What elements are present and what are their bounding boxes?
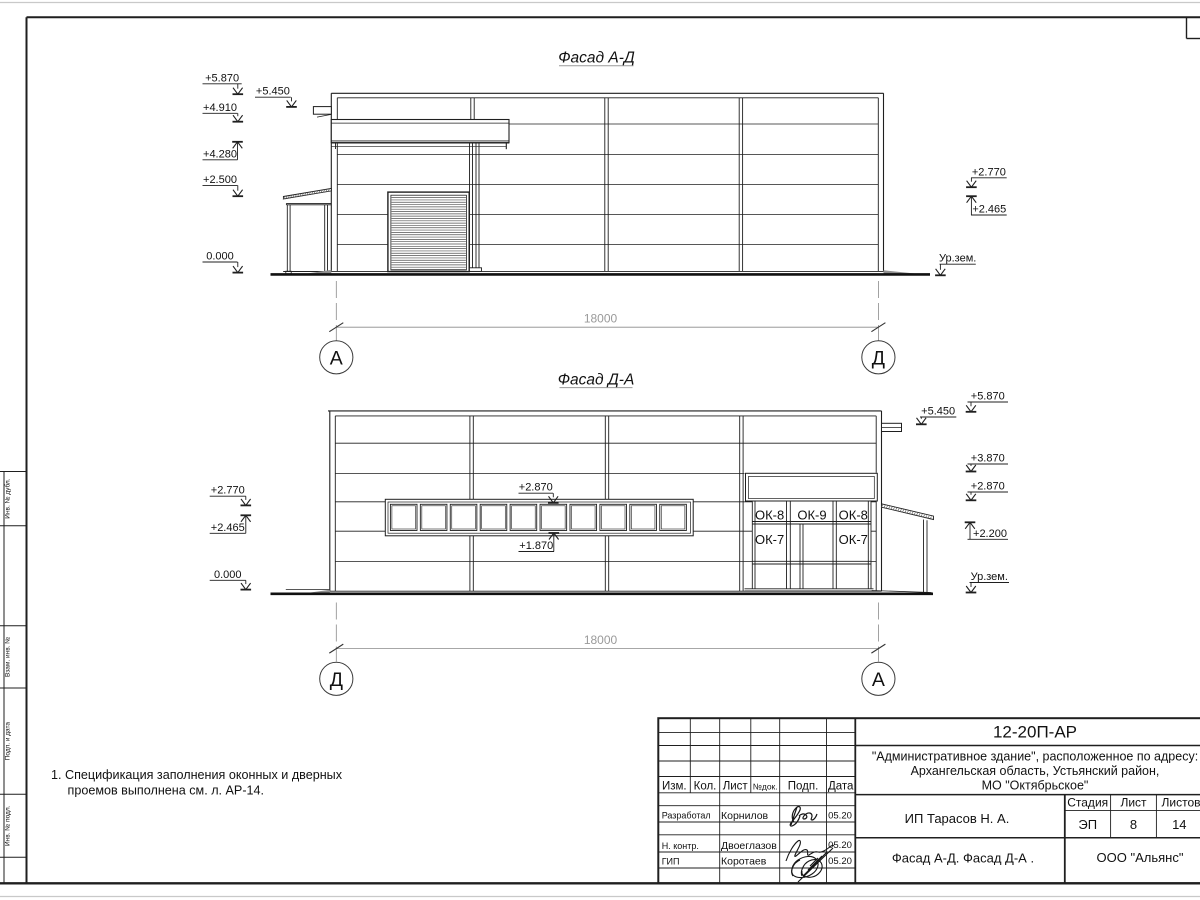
svg-text:Инв. № подл.: Инв. № подл.	[5, 805, 12, 846]
svg-text:+2.500: +2.500	[203, 174, 237, 186]
svg-text:Д: Д	[330, 669, 343, 691]
svg-text:Лист: Лист	[723, 780, 749, 792]
svg-text:0.000: 0.000	[206, 251, 234, 263]
svg-text:Фасад Д-А: Фасад Д-А	[558, 371, 635, 388]
svg-text:Дата: Дата	[828, 780, 854, 792]
svg-text:14: 14	[1172, 817, 1186, 832]
svg-text:+5.870: +5.870	[971, 391, 1005, 403]
svg-text:проемов выполнена см. л. АР-14: проемов выполнена см. л. АР-14.	[68, 784, 265, 798]
svg-text:Д: Д	[872, 347, 885, 369]
svg-text:8: 8	[1130, 817, 1137, 832]
svg-text:+4.280: +4.280	[203, 148, 237, 160]
svg-text:18000: 18000	[584, 633, 618, 647]
svg-text:+5.450: +5.450	[921, 406, 955, 418]
svg-text:"Административное здание", рас: "Административное здание", расположенное…	[872, 750, 1198, 764]
svg-text:Коротаев: Коротаев	[721, 856, 767, 868]
svg-text:Подп. и дата: Подп. и дата	[5, 722, 12, 761]
svg-text:05.20: 05.20	[828, 810, 852, 821]
svg-text:Инв. № дубл.: Инв. № дубл.	[4, 478, 12, 518]
svg-text:18000: 18000	[584, 312, 618, 326]
svg-text:ИП Тарасов Н. А.: ИП Тарасов Н. А.	[905, 811, 1010, 826]
svg-text:Подп.: Подп.	[788, 780, 819, 792]
svg-text:+2.770: +2.770	[211, 485, 245, 497]
svg-text:+2.770: +2.770	[972, 166, 1006, 178]
svg-text:1. Спецификация заполнения око: 1. Спецификация заполнения оконных и две…	[51, 768, 343, 782]
svg-text:Изм.: Изм.	[662, 780, 687, 792]
svg-text:Листов: Листов	[1162, 796, 1200, 810]
svg-text:ЭП: ЭП	[1078, 817, 1097, 832]
svg-text:Двоеглазов: Двоеглазов	[721, 840, 777, 852]
svg-text:+3.870: +3.870	[971, 453, 1005, 465]
svg-text:ООО "Альянс": ООО "Альянс"	[1097, 850, 1184, 865]
svg-text:Н. контр.: Н. контр.	[662, 841, 699, 851]
svg-text:Ур.зем.: Ур.зем.	[939, 253, 976, 265]
svg-text:ОК-8: ОК-8	[839, 508, 868, 523]
svg-text:Стадия: Стадия	[1067, 796, 1108, 810]
svg-text:ОК-7: ОК-7	[839, 532, 868, 547]
svg-text:+2.200: +2.200	[973, 528, 1007, 540]
svg-text:Взам. инв. №: Взам. инв. №	[5, 637, 12, 677]
svg-text:+5.450: +5.450	[256, 86, 290, 98]
svg-text:Фасад А-Д: Фасад А-Д	[558, 50, 635, 67]
svg-text:МО "Октябрьское": МО "Октябрьское"	[982, 779, 1089, 793]
svg-text:Разработал: Разработал	[662, 811, 711, 821]
svg-text:Кол.: Кол.	[694, 780, 717, 792]
svg-text:+2.870: +2.870	[971, 481, 1005, 493]
svg-text:+2.465: +2.465	[211, 522, 245, 534]
svg-text:№док.: №док.	[753, 781, 778, 791]
svg-text:Фасад А-Д. Фасад Д-А .: Фасад А-Д. Фасад Д-А .	[892, 850, 1034, 865]
svg-text:+4.910: +4.910	[203, 102, 237, 114]
svg-text:Ур.зем.: Ур.зем.	[971, 571, 1008, 583]
svg-text:12-20П-АР: 12-20П-АР	[993, 722, 1077, 741]
svg-text:А: А	[872, 669, 885, 691]
svg-text:Корнилов: Корнилов	[721, 810, 769, 822]
svg-text:+5.870: +5.870	[205, 72, 239, 84]
svg-text:Лист: Лист	[1120, 796, 1147, 810]
svg-text:ОК-8: ОК-8	[755, 508, 784, 523]
svg-text:ОК-7: ОК-7	[755, 532, 784, 547]
svg-text:А: А	[330, 347, 343, 369]
svg-text:ОК-9: ОК-9	[797, 508, 826, 523]
svg-text:Архангельская область, Устьянс: Архангельская область, Устьянский район,	[911, 764, 1160, 778]
svg-text:05.20: 05.20	[828, 856, 852, 867]
svg-text:+2.465: +2.465	[972, 204, 1006, 216]
svg-text:ГИП: ГИП	[662, 856, 680, 866]
svg-text:+1.870: +1.870	[519, 540, 553, 552]
svg-text:0.000: 0.000	[214, 569, 242, 581]
svg-text:+2.870: +2.870	[519, 482, 553, 494]
